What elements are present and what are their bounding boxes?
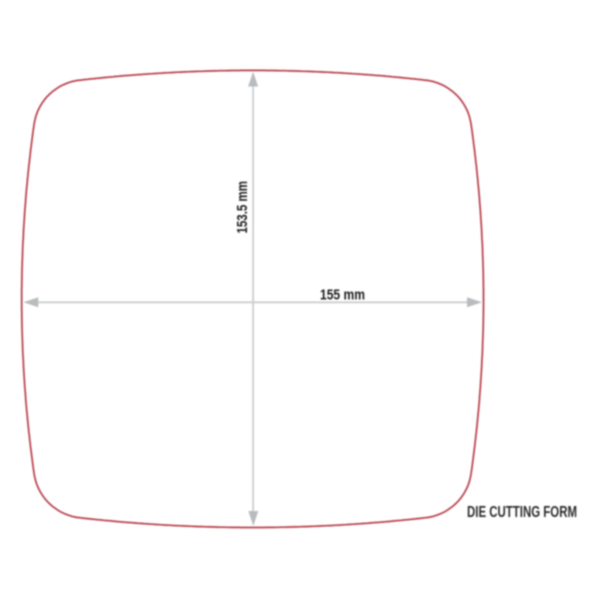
svg-text:DIE CUTTING FORM: DIE CUTTING FORM [467, 504, 577, 521]
svg-text:155 mm: 155 mm [320, 286, 365, 303]
svg-text:153.5 mm: 153.5 mm [234, 181, 251, 234]
